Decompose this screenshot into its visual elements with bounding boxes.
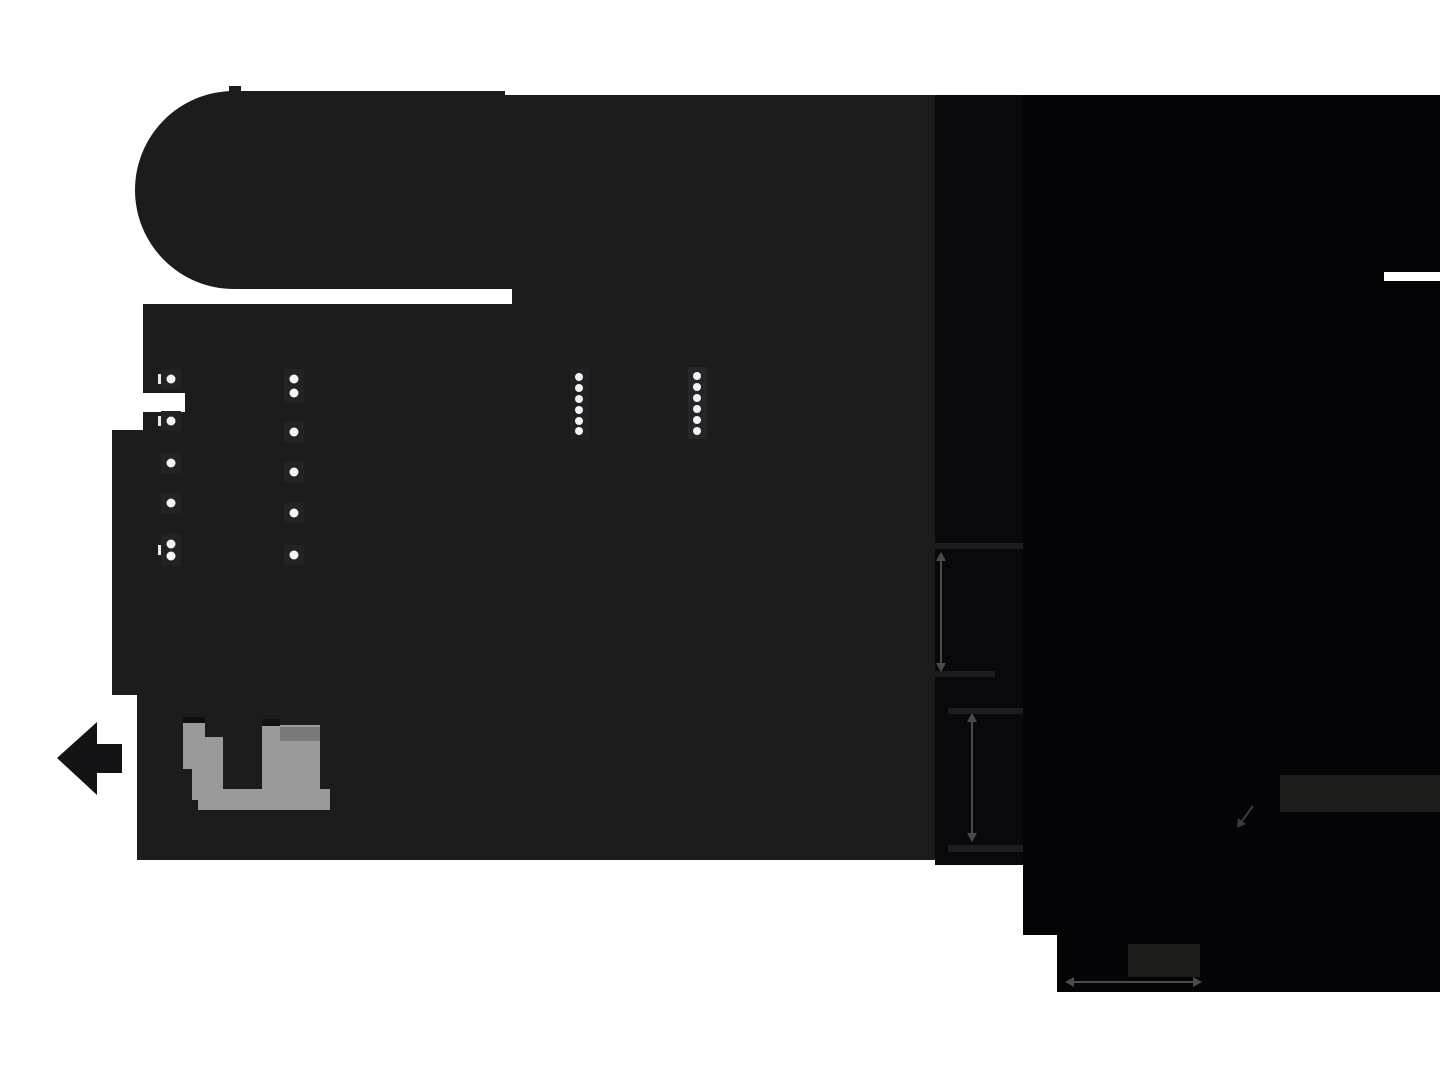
usb-connector-bottom-bar bbox=[198, 789, 330, 810]
extension-line-mid-upper bbox=[935, 671, 995, 677]
device-seam-strip bbox=[935, 95, 1023, 865]
extension-line-mid-lower bbox=[948, 708, 1023, 714]
edge-tick bbox=[158, 545, 161, 555]
device-dimension-diagram bbox=[0, 0, 1440, 1080]
usb-connector-cap-right bbox=[262, 719, 280, 726]
usb-connector-shade bbox=[280, 727, 320, 741]
base-facet bbox=[1128, 944, 1200, 977]
button-pad bbox=[161, 534, 181, 566]
button-pad bbox=[284, 369, 304, 403]
extension-line-bottom bbox=[948, 845, 1023, 852]
left-pointer-arrow bbox=[57, 722, 122, 795]
diagram-page bbox=[0, 0, 1440, 1080]
device-body-silhouette bbox=[112, 91, 935, 860]
edge-tick bbox=[158, 416, 161, 426]
rear-edge-highlight bbox=[1384, 272, 1440, 281]
usb-connector-cap-left bbox=[183, 717, 205, 723]
device-top-nub bbox=[229, 86, 241, 92]
extension-line-top bbox=[935, 543, 1023, 549]
edge-tick bbox=[158, 374, 161, 384]
rear-panel-facet bbox=[1280, 775, 1440, 812]
device-rear-block bbox=[1023, 95, 1440, 992]
